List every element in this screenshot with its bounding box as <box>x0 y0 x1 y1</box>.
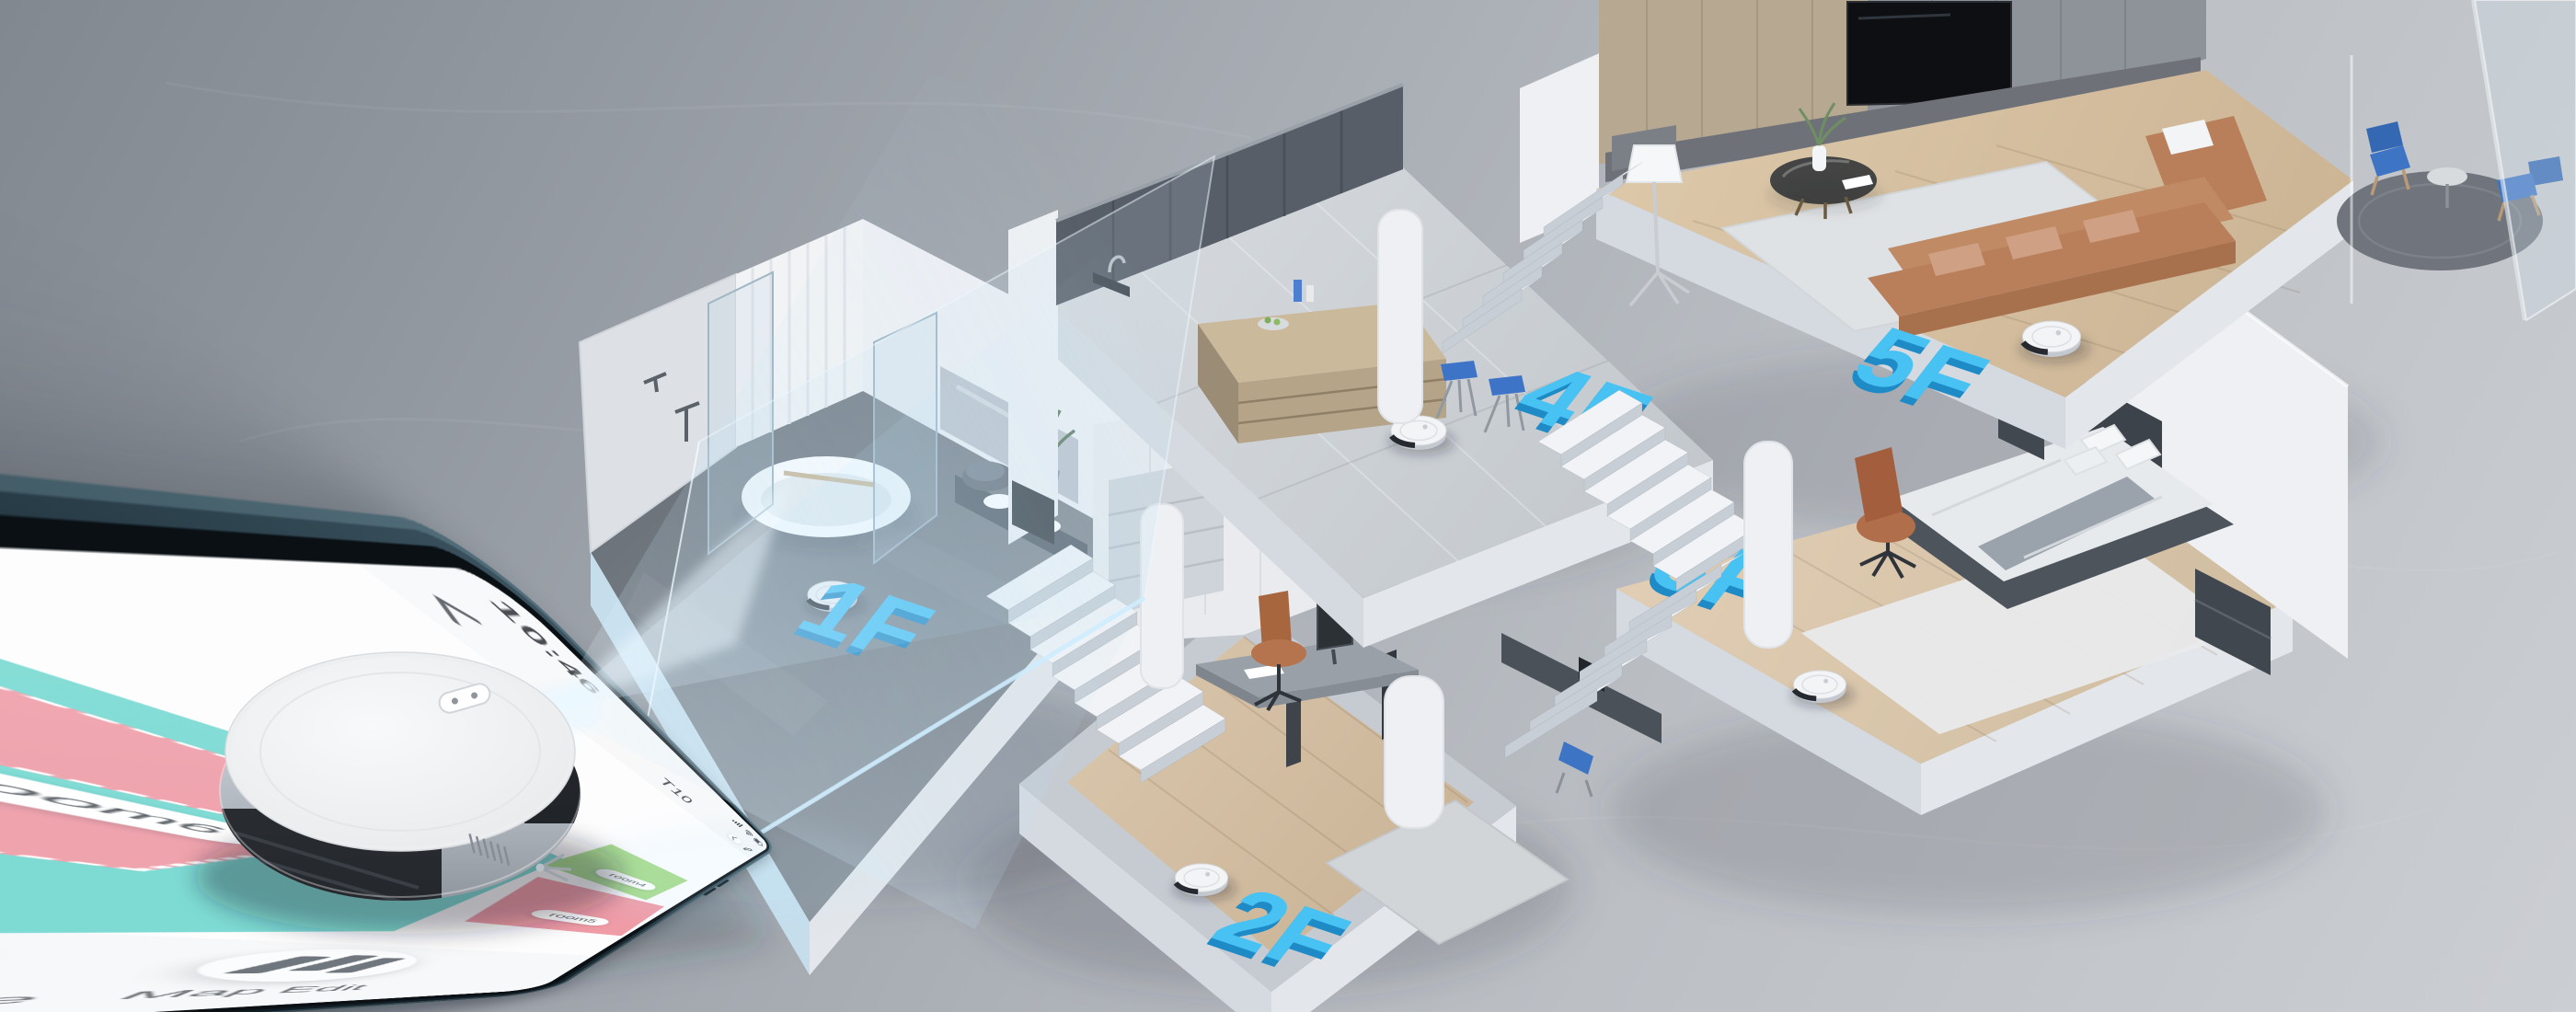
blue-chair <box>1558 742 1593 775</box>
scene-stage: 1F 1F <box>0 0 2576 1012</box>
wifi-icon <box>743 829 754 838</box>
glass-wall <box>2475 0 2576 320</box>
bottle <box>1306 285 1314 302</box>
vase <box>1812 145 1826 171</box>
balcony-nook <box>2337 0 2576 320</box>
floor-5f-living: 5F 5F <box>1520 0 2576 449</box>
cellular-signal-icon <box>731 819 744 829</box>
fruit-bowl <box>1258 317 1289 330</box>
battery-icon <box>753 837 765 847</box>
bottle <box>1294 280 1302 302</box>
side-table <box>2427 167 2467 186</box>
chevron-left-icon <box>732 836 739 841</box>
edit-pencil-icon[interactable] <box>742 845 754 854</box>
